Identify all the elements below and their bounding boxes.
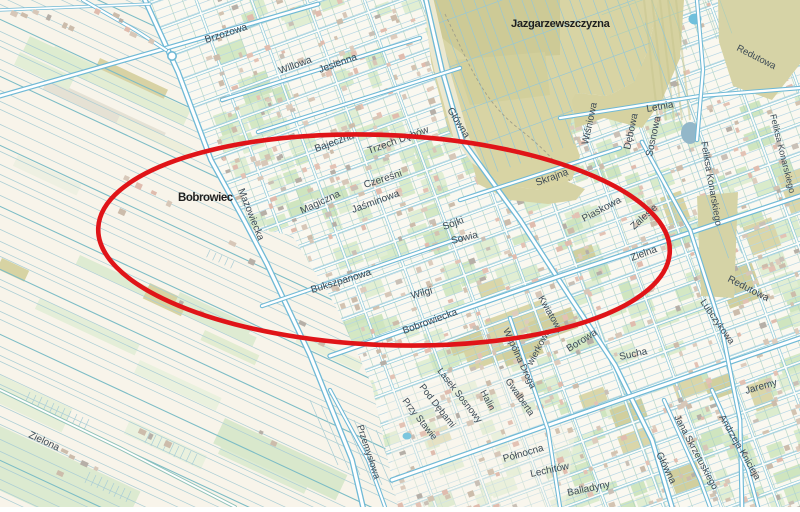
svg-text:Jazgarzewszczyzna: Jazgarzewszczyzna xyxy=(511,18,611,30)
svg-text:Bobrowiec: Bobrowiec xyxy=(178,192,234,204)
